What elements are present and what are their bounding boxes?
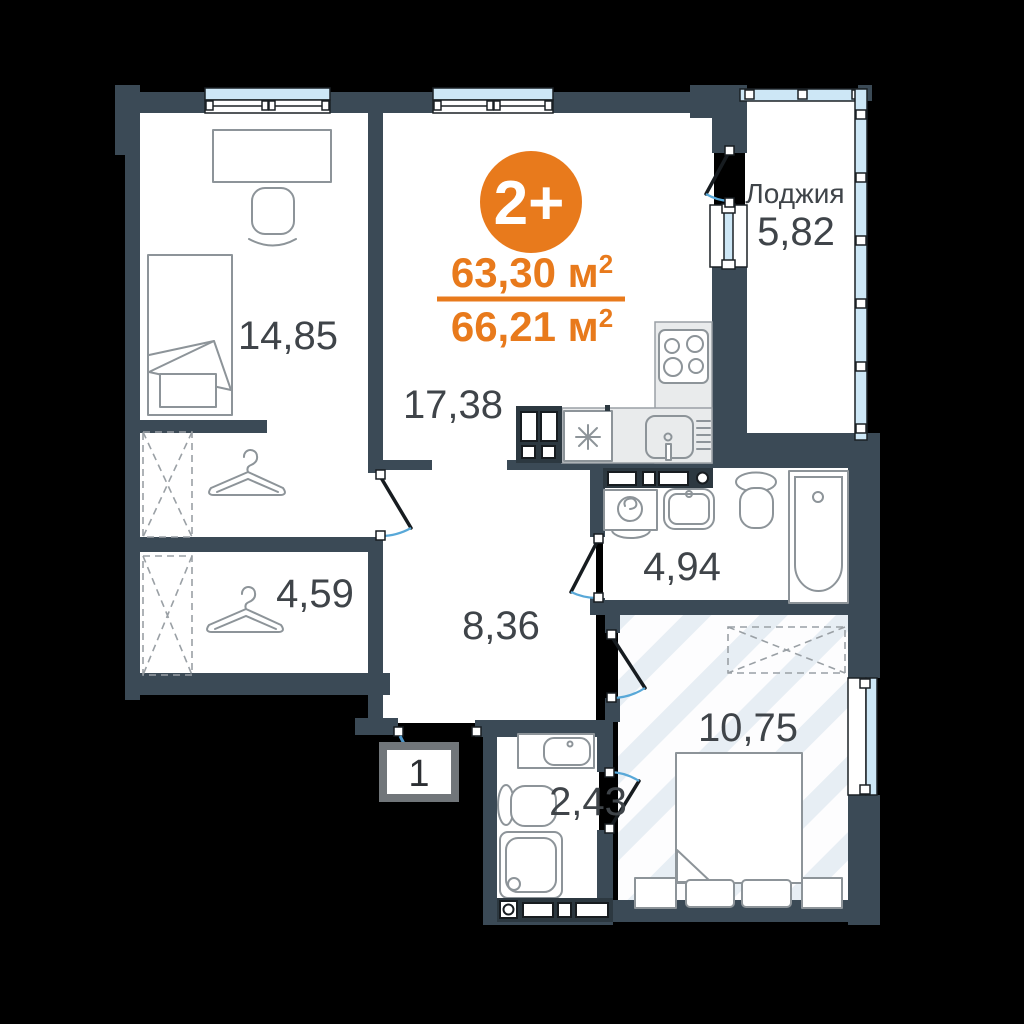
living-area-value: 63,30 м2 — [451, 249, 613, 296]
wardrobe-area-label: 4,59 — [276, 572, 354, 616]
total-area-value: 66,21 м2 — [451, 303, 613, 350]
entrance-number: 1 — [408, 753, 429, 795]
bathroom-duct — [603, 468, 713, 488]
bathroom-area-label: 4,94 — [643, 545, 721, 589]
window-bedroom2 — [848, 678, 877, 795]
window-living — [433, 88, 553, 113]
bathroom-sink-icon — [664, 489, 714, 529]
hallway-area-label: 8,36 — [462, 604, 540, 648]
desk — [213, 130, 331, 182]
shower-toilet-icon — [498, 785, 556, 826]
loggia-name-label: Лоджия — [745, 178, 844, 209]
entrance-badge: 1 — [383, 746, 455, 798]
washing-machine-icon — [604, 490, 657, 538]
floor-plan-canvas: 1 2+ 63,30 м2 66,21 м2 14,85 17,38 Лоджи… — [0, 0, 1024, 1024]
shower-duct — [497, 898, 613, 922]
window-kitchen-loggia — [710, 204, 747, 269]
loggia-area-label: 5,82 — [757, 210, 835, 254]
pillow — [686, 880, 734, 907]
fridge-icon — [564, 411, 612, 461]
bedroom2-area-label: 10,75 — [698, 706, 798, 750]
shower-room-area-label: 2,43 — [549, 780, 627, 824]
floor-hallway — [381, 460, 596, 723]
apartment-floor-plan: 1 2+ 63,30 м2 66,21 м2 14,85 17,38 Лоджи… — [0, 0, 1024, 1024]
shower-sink-icon — [518, 734, 594, 768]
type-badge-label: 2+ — [494, 169, 565, 238]
bathtub-icon — [789, 471, 848, 603]
stove-icon — [659, 330, 708, 383]
floor-loggia — [745, 96, 860, 436]
pillow — [742, 880, 791, 907]
toilet-icon — [736, 473, 776, 529]
single-bed — [148, 255, 232, 415]
shower-tray-icon — [500, 832, 562, 898]
living-kitchen-area-label: 17,38 — [403, 383, 503, 427]
nightstand — [802, 878, 842, 908]
window-bedroom — [205, 88, 330, 113]
nightstand — [635, 878, 676, 908]
bedroom-area-label: 14,85 — [238, 314, 338, 358]
